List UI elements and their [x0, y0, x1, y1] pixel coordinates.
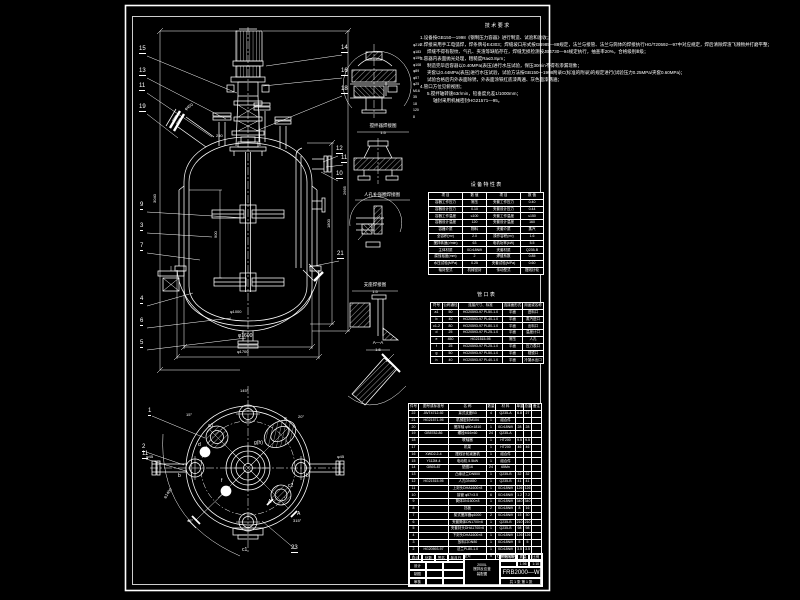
table-row: 容器设计压力0.10夹套设计压力0.44 — [429, 206, 544, 213]
cell — [419, 471, 449, 478]
cell: 450 — [443, 336, 459, 343]
plan-label-b1: b — [178, 474, 181, 479]
cell: 传动型式 — [487, 267, 521, 274]
table-row: 水压试验(MPa)0.25夹套试验(MPa)0.60 — [429, 260, 544, 267]
cell: 25 — [443, 330, 459, 337]
table-row: 容器设计温度120夹套设计温度160 — [429, 220, 544, 227]
front-view — [147, 27, 351, 373]
plan-label-A2: A — [297, 512, 300, 517]
detail-section-aa — [348, 350, 406, 405]
column-header: 公称通径 — [443, 303, 459, 310]
table-row: 8挡板20Cr18Ni9816 — [409, 505, 542, 512]
cell: 0Cr18Ni9 — [496, 492, 516, 499]
cell — [419, 444, 449, 451]
tb-check-label: 审核 — [409, 578, 426, 586]
detail-dim-5: φ89 — [413, 70, 419, 74]
cell — [532, 546, 542, 553]
balloon-11r: 11 — [341, 155, 347, 163]
cell: 下封头DHA1600×8 — [449, 533, 487, 540]
cell: 210 — [516, 519, 524, 526]
plan-label-A1: A — [268, 500, 271, 505]
column-header: 数 值 — [463, 193, 487, 200]
balloon-16: 16 — [341, 68, 348, 76]
cell — [419, 505, 449, 512]
table-row: g50HG20593-97 PL50-1.0平面视镜口 — [431, 350, 544, 357]
table-row: 21HG21571-95机械密封M1041组合件 — [409, 417, 542, 424]
plan-label-c2: c2 — [288, 484, 293, 489]
cell — [532, 505, 542, 512]
cell: 30 — [524, 512, 532, 519]
cell: 0Cr18Ni9 — [496, 546, 516, 553]
cell: 轴封型式 — [429, 267, 463, 274]
title-block-right: 阶段标记 质量 比例 1.96 1:10 FRB2000—W 共 1 张 第 1… — [500, 554, 542, 586]
cell: 18 — [409, 437, 419, 444]
cell: 耳式支座B3 — [449, 410, 487, 417]
balloon-3: 3 — [140, 223, 143, 231]
cell — [532, 424, 542, 431]
detail-dim-9: 35 — [413, 96, 417, 100]
tb-date-label: 年月日 — [448, 554, 464, 562]
cell: 16 — [409, 451, 419, 458]
cell — [532, 444, 542, 451]
cell: 25 — [443, 343, 459, 350]
cell: 夹套工作温度 — [487, 213, 521, 220]
cell: 0Cr18Ni9 — [496, 539, 516, 546]
cell: 平面 — [503, 316, 523, 323]
cell: 挡板 — [449, 505, 487, 512]
detail-dim-12: 8 — [413, 116, 415, 120]
cell: 28 — [516, 424, 524, 431]
cell: 20 — [409, 424, 419, 431]
cell: 1 — [487, 526, 496, 533]
cell — [419, 492, 449, 499]
cell: 平面 — [503, 343, 523, 350]
cell: 6.8 — [516, 410, 524, 417]
cell: 筒体DN1600×8 — [449, 499, 487, 506]
cell: 0Cr18Ni9 — [496, 485, 516, 492]
table-row: 主体材质0Cr18Ni9夹套材质Q235-B — [429, 247, 544, 254]
cell: 夹套工作压力 — [487, 199, 521, 206]
nozzle-table: 符号公称通径连接尺寸、标准连接面形式用途或名称a150HG20593-97 PL… — [430, 302, 544, 364]
cell: 50 — [443, 309, 459, 316]
cell: 夹套筒体DN1700×6 — [449, 519, 487, 526]
detail-manhole-pad — [350, 197, 410, 247]
cell: XWD2.2-4 — [419, 451, 449, 458]
detail-dim-10: 18 — [413, 103, 417, 107]
plan-label-c1: c1 — [242, 548, 247, 553]
balloon-7: 7 — [140, 243, 143, 251]
cell — [532, 465, 542, 472]
cell: 9.5 — [524, 437, 532, 444]
cell: 1 — [487, 444, 496, 451]
cell — [419, 526, 449, 533]
column-header: 名 称 — [449, 404, 487, 411]
cell: 98 — [524, 526, 532, 533]
plan-label-a1: a1 — [208, 424, 214, 429]
cell: 3 — [409, 539, 419, 546]
column-header: 单重 — [516, 404, 524, 411]
plan-label-b2: b — [306, 474, 309, 479]
cell: 126 — [516, 485, 524, 492]
table-row: 10接管 φ57×3.560Cr18Ni91.27.2 — [409, 492, 542, 499]
cell: GB5782-86 — [419, 431, 449, 438]
cell — [532, 539, 542, 546]
cell: a1 — [431, 309, 443, 316]
cell: 27 — [524, 410, 532, 417]
cell — [524, 451, 532, 458]
cell: 出料口 — [523, 323, 544, 330]
cell: 32 — [524, 471, 532, 478]
cell: 7.2 — [524, 492, 532, 499]
cell: 210 — [524, 519, 532, 526]
cell: 容器工作压力 — [429, 199, 463, 206]
tb-blank — [443, 562, 464, 570]
cell — [532, 512, 542, 519]
table-row: 18联轴器1HT2009.59.5 — [409, 437, 542, 444]
cell: 46 — [524, 444, 532, 451]
cell: 9 — [409, 499, 419, 506]
cell: 1 — [487, 478, 496, 485]
table-row: 17机架1HT2004646 — [409, 444, 542, 451]
note-line-8: 4.管口方位见俯视图； — [420, 85, 464, 90]
table-row: 轴封型式机械密封传动型式摆线针轮 — [429, 267, 544, 274]
balloon-plan-1: 1 — [148, 408, 151, 416]
balloon-10: 10 — [336, 171, 343, 179]
cell: 夹套材质 — [487, 247, 521, 254]
table-row: f25HG20593-97 PL25-1.0平面压力表口 — [431, 343, 544, 350]
cell: 2 — [409, 546, 419, 553]
column-header: 图号或标准号 — [419, 404, 449, 411]
note-line-3: 焊缝不得有裂纹、气孔、夹渣等缺陷存在，焊缝无损检测按JB4730—94规定执行，… — [427, 50, 648, 55]
cell: 冷凝水出口 — [523, 357, 544, 364]
cell: 2 — [487, 512, 496, 519]
balloon-5: 5 — [140, 340, 143, 348]
tb-blank — [426, 570, 443, 578]
char-table-title: 设 备 特 性 表 — [471, 183, 502, 188]
cell: 340 — [524, 499, 532, 506]
table-row: 全容积(m³)2.0操作容积(m³)1.6 — [429, 233, 544, 240]
detail5-title: A—A — [373, 341, 384, 346]
cell: 平面 — [503, 309, 523, 316]
dim-250: 250 — [216, 134, 223, 138]
cell: 4 — [409, 533, 419, 540]
cell: ≤100 — [463, 213, 487, 220]
cell: 平面 — [503, 357, 523, 364]
detail-dim-6: φ57 — [413, 77, 419, 81]
cell: 160 — [521, 220, 544, 227]
cell: 法兰PL80-1.0 — [449, 546, 487, 553]
cell: 5 — [516, 539, 524, 546]
tb-draw-label: 制图 — [409, 570, 426, 578]
cell — [419, 533, 449, 540]
cell: 夹套设计压力 — [487, 206, 521, 213]
cell: HG20593-97 PL25-1.0 — [459, 343, 503, 350]
detail-dim-4: φ108 — [413, 64, 421, 68]
table-row: 搅拌转速(r/min)63电机功率(kW)5.5 — [429, 240, 544, 247]
cell: HG20593-97 PL40-1.0 — [459, 357, 503, 364]
cell: 5.5 — [521, 240, 544, 247]
cell: 0.25 — [463, 260, 487, 267]
column-header: 项 目 — [487, 193, 521, 200]
cad-drawing-sheet: 1513111993746514161812111021121123a1deg(… — [0, 0, 800, 600]
cell: Q235-B — [496, 471, 516, 478]
cell: h — [431, 357, 443, 364]
tb-blank — [443, 578, 464, 586]
cell: 平面 — [503, 323, 523, 330]
cell — [532, 451, 542, 458]
dim-900: 900 — [214, 231, 218, 238]
cell: 0.85 — [521, 254, 544, 261]
cell: 平面 — [503, 330, 523, 337]
cell: 物料 — [463, 226, 487, 233]
cell — [532, 519, 542, 526]
cell: 1 — [487, 539, 496, 546]
cell: 放料口DN80 — [449, 539, 487, 546]
cell — [532, 437, 542, 444]
cell: 1 — [487, 485, 496, 492]
cell — [419, 424, 449, 431]
detail-dim-2: φ183 — [413, 51, 421, 55]
cell — [524, 465, 532, 472]
plan-angle-315: 315° — [293, 519, 301, 523]
cell: 15 — [516, 512, 524, 519]
cell: 24 — [487, 431, 496, 438]
cell: 0Cr18Ni9 — [463, 247, 487, 254]
cell: 0Cr18Ni9 — [496, 512, 516, 519]
cell: 10 — [409, 492, 419, 499]
cell: 63 — [463, 240, 487, 247]
cell: JB/T4712-92 — [419, 410, 449, 417]
detail-support-weld — [350, 291, 398, 340]
table-row: 腐蚀裕度(mm)2焊缝系数0.85 — [429, 254, 544, 261]
cell: 5 — [409, 526, 419, 533]
table-row: 14GB93-87垫圈162465Mn — [409, 465, 542, 472]
cell: 11 — [409, 485, 419, 492]
cell: 0.40 — [521, 199, 544, 206]
cell: 组合件 — [496, 417, 516, 424]
cell: 1 — [487, 437, 496, 444]
plan-dim-w: φ45 — [146, 455, 153, 459]
cell: 容器设计温度 — [429, 220, 463, 227]
cell — [516, 431, 524, 438]
note-line-7: 试验合格后内外表面除锈，外表面涂铁红底漆两遍、灰色面漆两遍； — [427, 78, 562, 83]
drawing-linework — [0, 0, 800, 600]
title-block-center: 2000L 搅拌反应釜 装配图 — [464, 554, 500, 586]
cell: 41 — [516, 478, 524, 485]
cell: 人孔 — [523, 336, 544, 343]
table-row: 容器工作温度≤100夹套工作温度≤150 — [429, 213, 544, 220]
cell: g — [431, 350, 443, 357]
detail3-title: 人孔补强圈焊接图 — [364, 193, 400, 198]
table-row: 5夹套封头DHA1700×61Q235-B9898 — [409, 526, 542, 533]
detail-dim-7: φ25 — [413, 83, 419, 87]
cell — [524, 417, 532, 424]
cell: 17 — [409, 444, 419, 451]
cell: 上封头DHA1600×8 — [449, 485, 487, 492]
cell: 常压 — [503, 336, 523, 343]
cell: 24 — [487, 465, 496, 472]
column-header: 件号 — [409, 404, 419, 411]
cell: 15 — [409, 458, 419, 465]
detail4-title: 支座焊接图 — [364, 283, 387, 288]
note-line-9: 5.搅拌轴转速63r/min，铅垂度允差1/1000mm； — [427, 92, 521, 97]
tb-drawing-number: FRB2000—W — [500, 567, 542, 578]
cell — [419, 519, 449, 526]
cell: HT200 — [496, 437, 516, 444]
cell: e — [431, 336, 443, 343]
cell: 夹套设计温度 — [487, 220, 521, 227]
detail-impeller-weld — [354, 132, 409, 184]
table-row: 12HG21515-95人孔DN4501Q235-B4141 — [409, 478, 542, 485]
cell: 8 — [516, 505, 524, 512]
cell: 容器工作温度 — [429, 213, 463, 220]
cell: 0Cr18Ni9 — [496, 424, 516, 431]
table-row: 15Y112M-4电动机 5.5kW1组合件 — [409, 458, 542, 465]
plan-angle-15: 15° — [186, 413, 192, 417]
cell: 温度计口 — [523, 330, 544, 337]
cell — [532, 410, 542, 417]
balloon-plan-23: 23 — [291, 545, 298, 553]
cell: 联轴器 — [449, 437, 487, 444]
cell — [532, 526, 542, 533]
cell — [516, 417, 524, 424]
cell — [532, 499, 542, 506]
cell: 全容积(m³) — [429, 233, 463, 240]
cell: 1 — [487, 417, 496, 424]
cell: 22 — [409, 410, 419, 417]
characteristics-table: 项 目数 值项 目数 值容器工作压力常压夹套工作压力0.40容器设计压力0.10… — [428, 192, 544, 275]
cell: 摆线针轮减速机 — [449, 451, 487, 458]
cell: 搅拌轴 φ50×1810 — [449, 424, 487, 431]
cell: 40 — [443, 357, 459, 364]
cell: 螺栓M16×60 — [449, 431, 487, 438]
cell: 1 — [487, 546, 496, 553]
cell: Q235-B — [521, 247, 544, 254]
plan-dim-e: φ45 — [337, 455, 344, 459]
cell: 1 — [487, 533, 496, 540]
cell: 操作容积(m³) — [487, 233, 521, 240]
cell: 机械密封 — [463, 267, 487, 274]
cell: 40 — [443, 316, 459, 323]
cell: 65Mn — [496, 465, 516, 472]
column-header: 材 料 — [496, 404, 516, 411]
tb-mass-label: 质量 — [517, 554, 530, 561]
cell: b — [431, 316, 443, 323]
tb-product-line3: 装配图 — [477, 572, 488, 577]
cell: 机架 — [449, 444, 487, 451]
cell: 常压 — [463, 199, 487, 206]
column-header: 备注 — [532, 404, 542, 411]
balloon-19: 19 — [139, 104, 146, 112]
plan-label-f: f — [221, 479, 222, 484]
cell: 腐蚀裕度(mm) — [429, 254, 463, 261]
detail2-scale: 1:5 — [380, 131, 386, 135]
nozzle-table-title: 管 口 表 — [477, 293, 495, 298]
note-line-1: 1.设备按GB150—1998《钢制压力容器》进行制造、试验和验收； — [420, 36, 551, 41]
column-header: 符号 — [431, 303, 443, 310]
tb-sheet-info: 共 1 张 第 1 张 — [500, 578, 542, 586]
cell: 桨式搅拌器φ1000 — [449, 512, 487, 519]
plan-angle-20: 20° — [298, 415, 304, 419]
cell — [532, 533, 542, 540]
note-line-6: 夹套以0.44MPa(表压)进行水压试验，试验方法按GB150—1998附录C(… — [427, 71, 685, 76]
table-row: 11上封头DHA1600×810Cr18Ni9126126 — [409, 485, 542, 492]
detail-flange — [343, 44, 411, 118]
cell: Q235-B — [496, 526, 516, 533]
cell: d — [431, 330, 443, 337]
cell: HG20593-97 PL50-1.0 — [459, 350, 503, 357]
tb-blank — [443, 570, 464, 578]
tb-sign-label: 签名 — [435, 554, 448, 562]
dim-2665: 2665 — [343, 186, 347, 195]
cell: 组合件 — [496, 451, 516, 458]
cell: 14 — [409, 465, 419, 472]
table-row: d25HG20593-97 PL25-1.0平面温度计口 — [431, 330, 544, 337]
note-line-4: 3.容器内表面抛光处理，粗糙度Ra≤0.8μm； — [420, 57, 508, 62]
cell: 电动机 5.5kW — [449, 458, 487, 465]
cell: 组合件 — [496, 458, 516, 465]
cell: 视镜口 — [523, 350, 544, 357]
cell — [419, 512, 449, 519]
cell: Q235-A — [496, 410, 516, 417]
balloon-4: 4 — [140, 296, 143, 304]
dim-jacket: φ1700 — [237, 350, 249, 354]
cell — [532, 471, 542, 478]
cell: 平面 — [503, 350, 523, 357]
tb-count-label: 处数 — [422, 554, 435, 562]
detail-dim-11: 120 — [413, 109, 419, 113]
table-row: 19GB5782-86螺栓M16×6024Q235-A — [409, 431, 542, 438]
note-line-5: 制造完毕后容器以0.40MPa(表压)进行水压试验，保压30min不得有渗漏现象… — [427, 64, 582, 69]
cell: 容器介质 — [429, 226, 463, 233]
cell: 126 — [524, 485, 532, 492]
cell — [419, 499, 449, 506]
cell: 13 — [409, 471, 419, 478]
plan-label-d: d — [198, 443, 201, 448]
cell: 80 — [443, 323, 459, 330]
cell: 水压试验(MPa) — [429, 260, 463, 267]
cell: 进料口 — [523, 309, 544, 316]
cell: 9.5 — [516, 437, 524, 444]
cell: 2 — [487, 505, 496, 512]
cell: HG20593-97 PL40-1.0 — [459, 316, 503, 323]
dim-impeller: φ1000 — [230, 310, 242, 314]
cell: 蒸汽进口 — [523, 316, 544, 323]
table-row: h40HG20593-97 PL40-1.0平面冷凝水出口 — [431, 357, 544, 364]
detail2-title: 搅拌器焊接图 — [370, 124, 397, 129]
cell: 3.5 — [516, 546, 524, 553]
cell: 蒸汽 — [521, 226, 544, 233]
table-row: 9筒体DN1600×810Cr18Ni9340340 — [409, 499, 542, 506]
plan-label-e: e — [284, 417, 287, 422]
cell: HG20593-97 — [419, 546, 449, 553]
table-row: 13凸缘法兰DN5001Q235-B3232 — [409, 471, 542, 478]
cell: 46 — [516, 444, 524, 451]
cell — [532, 492, 542, 499]
table-row: e450HG21515-95常压人孔 — [431, 336, 544, 343]
cell: 21 — [409, 417, 419, 424]
cell: 0Cr18Ni9 — [496, 505, 516, 512]
leader-lines — [147, 55, 343, 350]
column-header: 项 目 — [429, 193, 463, 200]
cell — [532, 431, 542, 438]
cell: 19 — [409, 431, 419, 438]
cell: 搅拌转速(r/min) — [429, 240, 463, 247]
table-row: 6夹套筒体DN1700×61Q235-B210210 — [409, 519, 542, 526]
cell: 0Cr18Ni9 — [496, 499, 516, 506]
detail4-scale: 1:5 — [372, 290, 378, 294]
table-row: b40HG20593-97 PL40-1.0平面蒸汽进口 — [431, 316, 544, 323]
